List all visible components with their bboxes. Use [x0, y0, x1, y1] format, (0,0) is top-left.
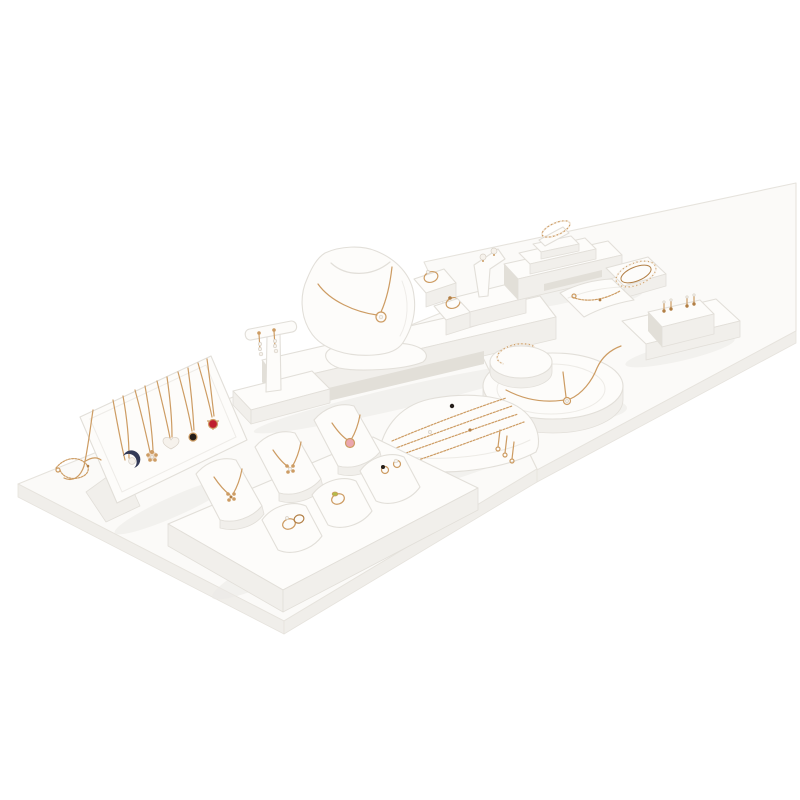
bust-body: [302, 247, 415, 355]
jewelry-display-scene: [0, 0, 800, 800]
black-bead: [450, 404, 454, 408]
pink-stone-pendant: [346, 439, 355, 448]
green-stone: [332, 492, 338, 496]
product-photo-stage: [0, 0, 800, 800]
